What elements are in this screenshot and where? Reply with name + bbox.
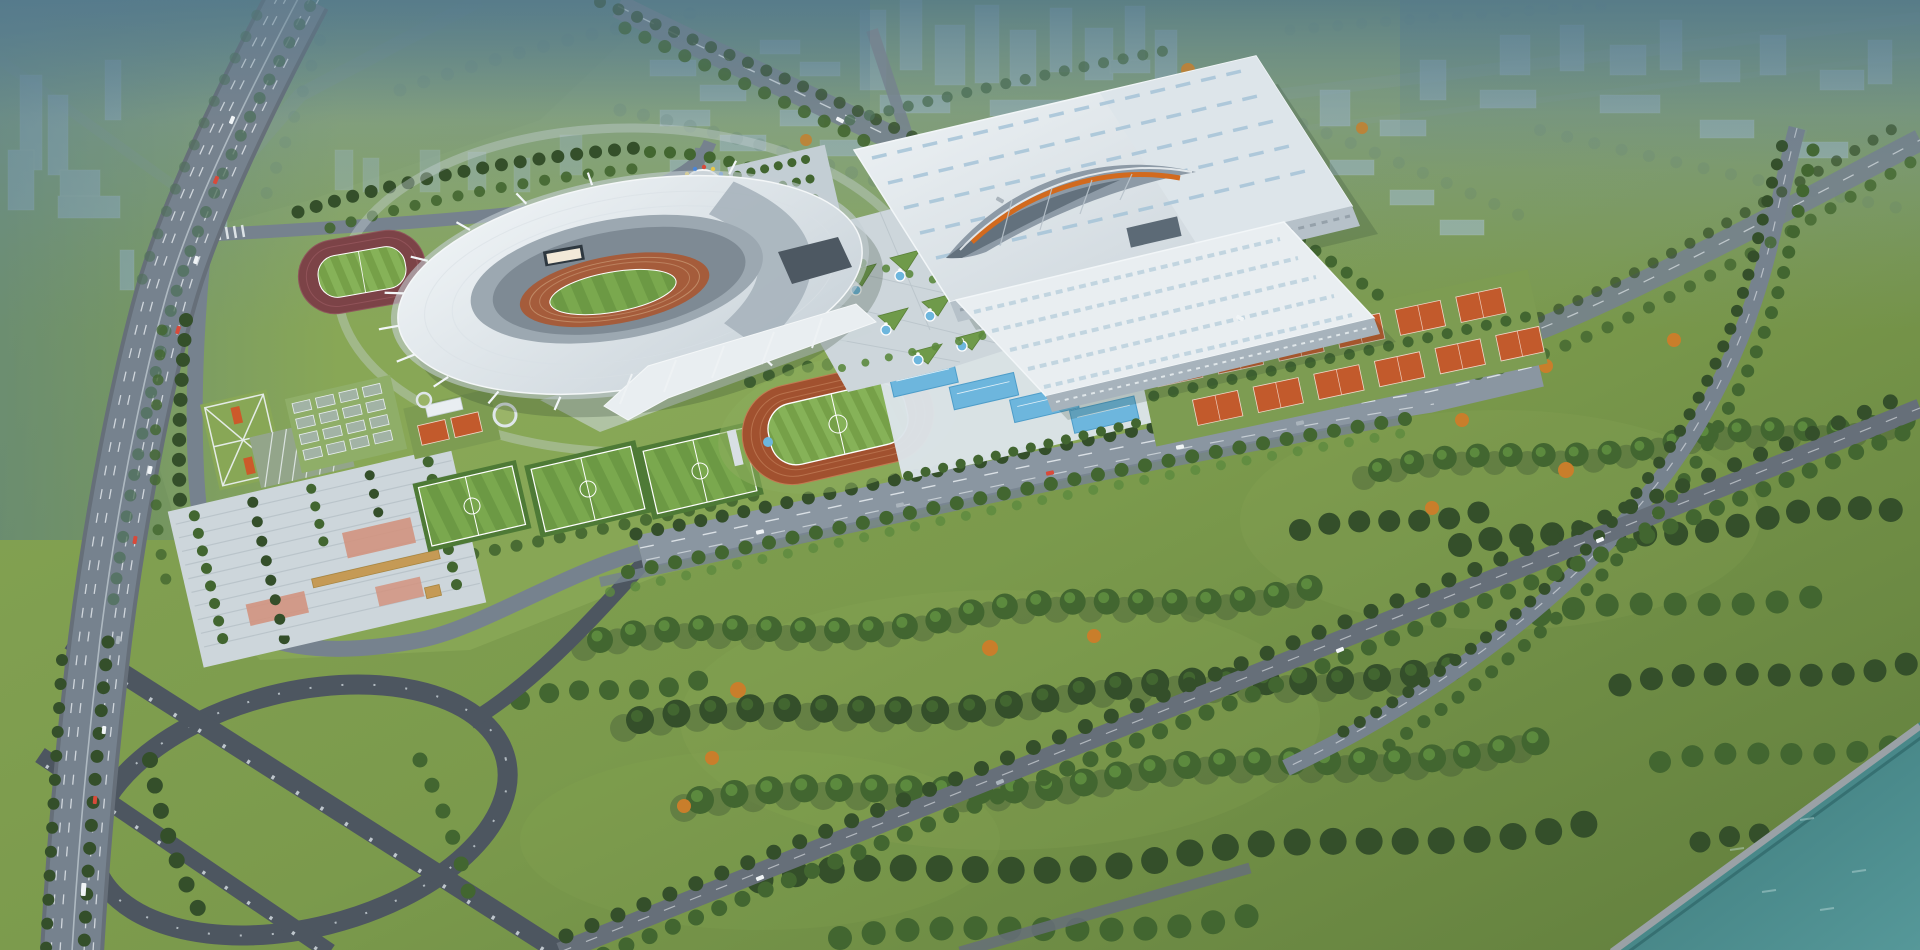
aerial-rendering-canvas — [0, 0, 1920, 950]
sports-complex-rendering — [0, 0, 1920, 950]
